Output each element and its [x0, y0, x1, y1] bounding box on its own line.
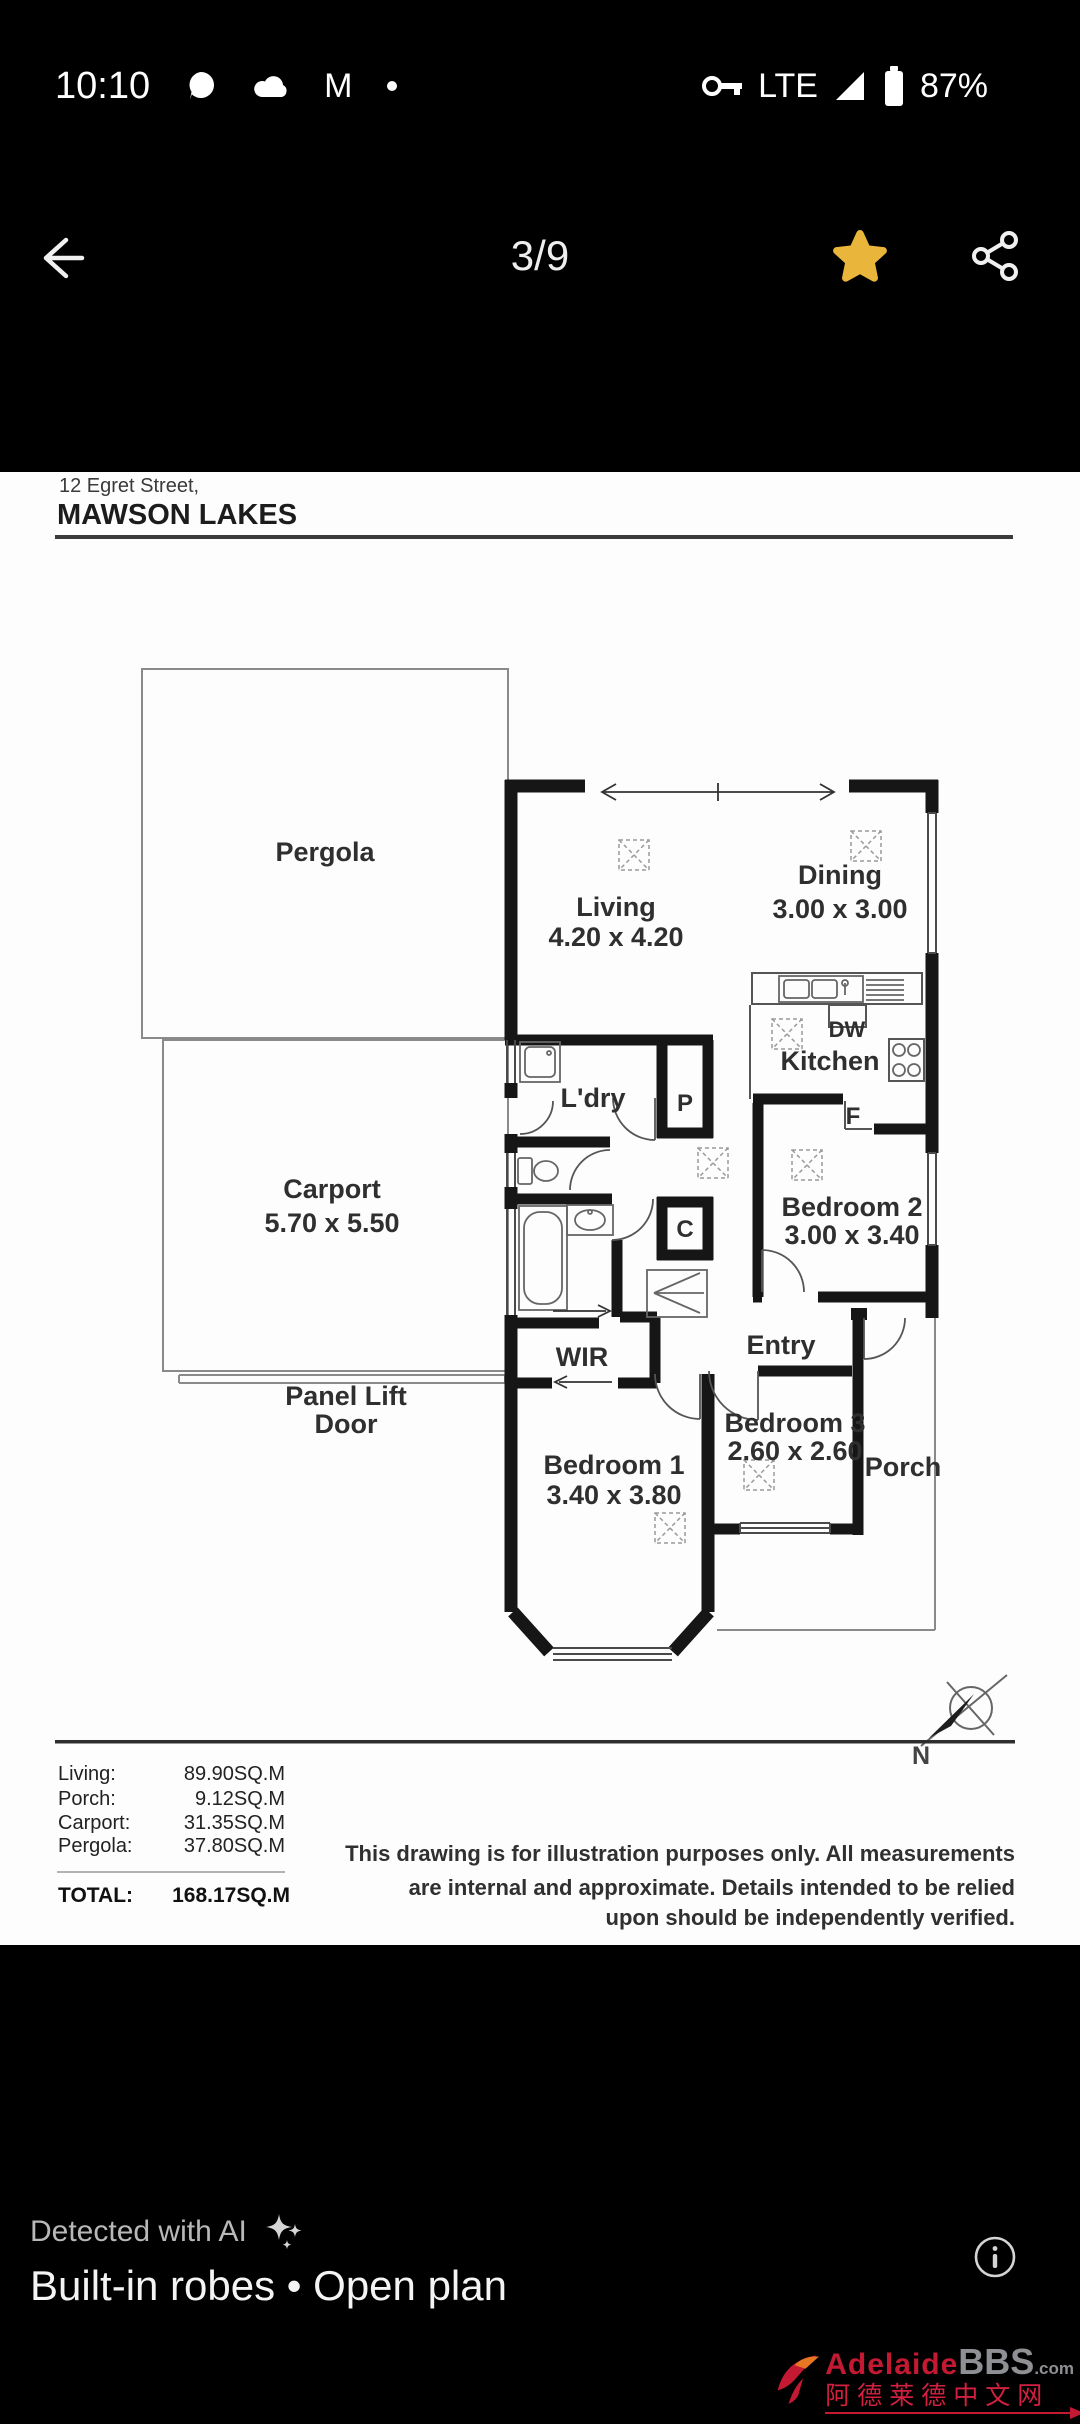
area-row-value: 9.12SQ.M [195, 1788, 285, 1810]
toilet-icon [518, 1158, 558, 1184]
address-suburb: MAWSON LAKES [57, 499, 297, 531]
plan-footer-rule [55, 1740, 1015, 1744]
disclaimer-line: upon should be independently verified. [606, 1905, 1015, 1930]
sparkle-icon [263, 2210, 307, 2254]
info-button[interactable] [970, 2232, 1020, 2282]
dimension-arrow [602, 783, 834, 801]
room-dims-bedroom3: 2.60 x 2.60 [727, 1436, 862, 1466]
chat-notification-icon [184, 69, 218, 103]
page-indicator: 3/9 [0, 232, 1080, 280]
area-row-label: Porch: [58, 1788, 116, 1810]
address-street: 12 Egret Street, [59, 475, 199, 497]
gmail-notification-icon: M [324, 67, 352, 106]
ai-detected-label: Detected with AI [30, 2215, 247, 2249]
area-total-value: 168.17SQ.M [172, 1884, 290, 1907]
room-label-living: Living [576, 892, 656, 922]
north-compass: N [912, 1675, 1007, 1770]
room-label-porch: Porch [865, 1452, 942, 1482]
kitchen-sink [779, 976, 904, 1002]
favorite-button[interactable] [828, 224, 892, 288]
vpn-key-icon [702, 73, 744, 99]
watermark-chinese-text: 阿德莱德中文网 [825, 2384, 1074, 2414]
room-dims-dining: 3.00 x 3.00 [772, 894, 907, 924]
status-bar: 10:10 M LTE 87% [0, 56, 1080, 116]
header-rule [55, 535, 1013, 539]
signal-strength-icon [832, 68, 868, 104]
disclaimer-line: are internal and approximate. Details in… [409, 1875, 1015, 1900]
room-dims-living: 4.20 x 4.20 [548, 922, 683, 952]
room-label-carport: Carport [283, 1174, 381, 1204]
room-label-kitchen: Kitchen [780, 1046, 879, 1076]
ai-detected-row: Detected with AI [30, 2210, 307, 2254]
label-cupboard: C [676, 1216, 693, 1243]
label-fridge: F [846, 1103, 861, 1130]
shower-icon [647, 1270, 707, 1317]
watermark-logo-icon [774, 2336, 821, 2422]
area-row-value: 37.80SQ.M [184, 1835, 285, 1857]
clock: 10:10 [55, 65, 150, 108]
share-icon [966, 226, 1026, 286]
area-row-label: Living: [58, 1763, 116, 1785]
label-dishwasher: DW [829, 1017, 866, 1042]
notification-dot-icon [386, 80, 398, 92]
room-label-bedroom3: Bedroom 3 [724, 1408, 865, 1438]
area-row-value: 31.35SQ.M [184, 1812, 285, 1834]
network-type-label: LTE [758, 67, 818, 106]
room-label-dining: Dining [798, 860, 882, 890]
basin-icon [567, 1205, 613, 1235]
label-pantry: P [677, 1090, 693, 1117]
disclaimer-line: This drawing is for illustration purpose… [345, 1841, 1015, 1866]
bathtub-icon [519, 1206, 567, 1310]
laundry-trough [520, 1042, 560, 1082]
gallery-header: 3/9 [0, 222, 1080, 298]
ai-features-text: Built-in robes • Open plan [30, 2262, 507, 2310]
floorplan-photo[interactable]: 12 Egret Street, MAWSON LAKES [0, 472, 1080, 1945]
label-panel-lift-2: Door [315, 1409, 378, 1439]
room-label-bedroom1: Bedroom 1 [543, 1450, 684, 1480]
room-label-entry: Entry [746, 1330, 815, 1360]
room-dims-bedroom1: 3.40 x 3.80 [546, 1480, 681, 1510]
disclaimer: This drawing is for illustration purpose… [345, 1841, 1015, 1930]
room-label-wir: WIR [556, 1342, 608, 1372]
room-label-pergola: Pergola [275, 837, 375, 867]
weather-cloud-icon [252, 71, 290, 101]
battery-percent-label: 87% [920, 67, 988, 106]
room-dims-carport: 5.70 x 5.50 [264, 1208, 399, 1238]
floorplan-drawing: 12 Egret Street, MAWSON LAKES [0, 472, 1080, 1945]
area-total-label: TOTAL: [58, 1884, 133, 1907]
cooktop-icon [893, 1044, 920, 1076]
watermark-brand-com: .com [1034, 2359, 1074, 2378]
area-table: Living: 89.90SQ.M Porch: 9.12SQ.M Carpor… [57, 1763, 290, 1907]
room-label-bedroom2: Bedroom 2 [781, 1192, 922, 1222]
room-label-laundry: L'dry [561, 1083, 626, 1113]
room-dims-bedroom2: 3.00 x 3.40 [784, 1220, 919, 1250]
compass-n-label: N [912, 1742, 930, 1770]
area-row-value: 89.90SQ.M [184, 1763, 285, 1785]
label-panel-lift-1: Panel Lift [285, 1381, 407, 1411]
battery-icon [882, 64, 906, 108]
share-button[interactable] [966, 226, 1026, 286]
watermark: AdelaideBBS.com 阿德莱德中文网 [774, 2336, 1074, 2422]
watermark-brand-gray: BBS [958, 2341, 1034, 2382]
area-row-label: Carport: [58, 1812, 130, 1834]
watermark-brand-red: Adelaide [825, 2348, 958, 2381]
star-icon [828, 224, 892, 288]
area-row-label: Pergola: [58, 1835, 133, 1857]
info-icon [970, 2232, 1020, 2282]
